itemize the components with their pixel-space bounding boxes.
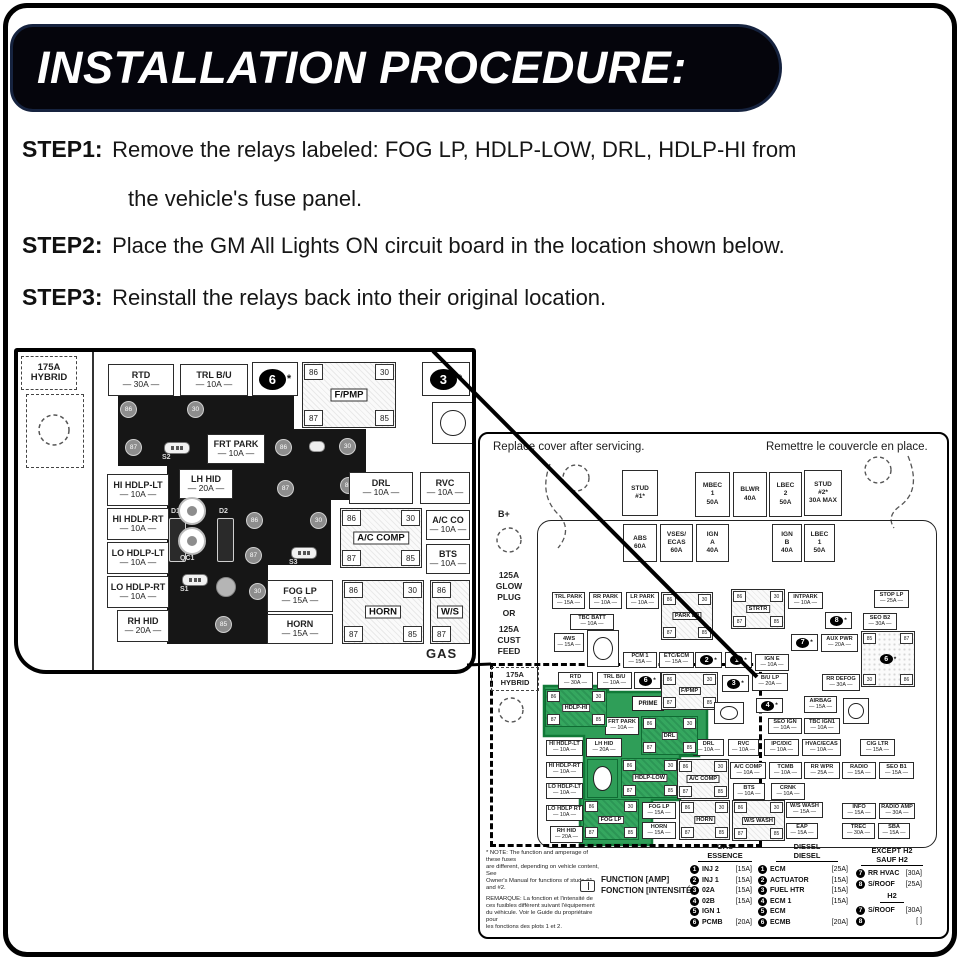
fuse-rr-defog-30a: RR DEFOG30A [822, 674, 860, 691]
screw-86: 86 [120, 401, 137, 418]
fuse-amp: 10A [810, 726, 833, 732]
relay-pin-87: 87 [734, 828, 747, 839]
component-oval [843, 698, 869, 724]
relay-pin-30: 30 [703, 674, 716, 685]
relay-w-s: 8687W/S [430, 580, 470, 644]
legend-amp: [30A] [906, 870, 922, 877]
fuse-amp: 10A [553, 748, 576, 754]
hybrid-175a-label: 175AHYBRID [491, 667, 539, 691]
owners-manual-icon [580, 880, 595, 892]
fuse-amp: 15A [882, 831, 905, 837]
relay-name-label: HORN [694, 816, 715, 824]
oval-shape [440, 410, 466, 437]
fuse-hvac-ecas-10a: HVAC/ECAS10A [802, 739, 841, 756]
fuse-lo-hdlp-rt-10a: LO HDLP-RT10A [107, 576, 169, 608]
fuse-amp: 10A [774, 771, 797, 777]
relay-hdlp-hi: 86308785HDLP-HI [545, 689, 607, 727]
relay-drl: 86308785DRL [641, 716, 698, 755]
fuse-amp: 10A [737, 792, 760, 798]
legend-amp: [15A] [736, 898, 752, 905]
badge-2: 2* [695, 652, 722, 668]
legend-name: INJ 2 [702, 866, 733, 873]
banner-title: INSTALLATION PROCEDURE: [37, 42, 687, 94]
fuse-lo-hdlp-rt-10a: LO HDLP RT10A [546, 805, 583, 821]
fuse-amp: 25A [810, 771, 833, 777]
legend-amp: [15A] [736, 887, 752, 894]
legend-name: IGN 1 [702, 908, 749, 915]
badge-asterisk: * [653, 677, 656, 684]
relay-name-label: W/S WASH [742, 817, 776, 825]
relay-pin-85: 85 [592, 714, 605, 725]
fuse-4ws-15a: 4WS15A [554, 633, 584, 652]
prime-label: PRIME [632, 696, 664, 711]
relay-pin-87: 87 [643, 742, 656, 753]
legend-name: PCMB [702, 919, 733, 926]
relay-pin-30: 30 [715, 802, 728, 813]
legend-name: ECM 1 [770, 898, 829, 905]
caption-english: Replace cover after servicing. [493, 441, 644, 453]
fuse-amp: 10A [810, 748, 833, 754]
fuse-amp: 25A [880, 599, 903, 605]
relay-pin-87: 87 [900, 633, 913, 644]
fuse-amp: 15A [647, 811, 670, 817]
component-oval [587, 759, 618, 798]
fuse-hi-hdlp-lt-10a: HI HDLP-LT10A [107, 474, 169, 506]
legend-amp: [15A] [736, 877, 752, 884]
step-1-text-line2: the vehicle's fuse panel. [128, 186, 362, 212]
legend-name: S/ROOF [868, 907, 903, 914]
legend-item-actuator: 2ACTUATOR[15A] [758, 876, 848, 885]
fuse-amp: 10A [610, 726, 633, 732]
legend-name: RR HVAC [868, 870, 903, 877]
relay-pin-87: 87 [663, 697, 676, 708]
relay-pin-86: 86 [344, 582, 363, 598]
fuse-seo-b1-15a: SEO B115A [879, 762, 914, 779]
function-amp-label: FUNCTION [AMP]FONCTION [INTENSITÉ] [601, 874, 694, 896]
badge-asterisk: * [287, 373, 291, 385]
fuse-amp: 10A [794, 601, 817, 607]
fuse-lo-hdlp-lt-10a: LO HDLP-LT10A [546, 783, 583, 799]
fuse-ign-a-40a: IGNA40A [696, 524, 729, 562]
legend-name: ACTUATOR [770, 877, 829, 884]
legend-num-3: 3 [758, 886, 767, 895]
legend-item-02b: 402B[15A] [690, 897, 752, 906]
fuse-amp: 10A [430, 525, 466, 534]
screw-30: 30 [249, 583, 266, 600]
legend-amp: [15A] [832, 887, 848, 894]
fuse-intpark-10a: INTPARK10A [788, 592, 823, 609]
badge-asterisk: * [458, 373, 462, 385]
fuse-a-c-comp-10a: A/C COMP10A [730, 762, 766, 779]
fuse-amp: 10A [120, 490, 156, 499]
fuse-ipc-dic-10a: IPC/DIC10A [764, 739, 799, 756]
relay-pin-30: 30 [403, 582, 422, 598]
badge-number: 7 [796, 638, 809, 648]
relay-pin-87: 87 [547, 714, 560, 725]
legend-item-h2-blank: 8[ ] [856, 917, 922, 926]
relay-pin-85: 85 [624, 827, 637, 838]
badge-asterisk: * [775, 702, 778, 709]
badge-number: 3 [727, 679, 740, 689]
qc1-label: QC1 [180, 555, 194, 562]
fuse-etc-ecm-15a: ETC/ECM15A [659, 652, 694, 668]
fuse-amp: 20A [555, 835, 578, 841]
legend-amp: [30A] [906, 907, 922, 914]
legend-header-h2: H2 [880, 892, 904, 903]
legend-item-ecmb: 6ECMB[20A] [758, 918, 848, 927]
fuse-amp: 15A [665, 660, 688, 666]
fuse-frt-park-10a: FRT PARK10A [605, 717, 639, 735]
step-1-text: Remove the relays labeled: FOG LP, HDLP-… [106, 137, 796, 162]
fuse-amp: 10A [120, 558, 156, 567]
relay-pin-86: 86 [733, 591, 746, 602]
legend-amp: [15A] [832, 877, 848, 884]
relay-pin-85: 85 [715, 827, 728, 838]
badge-number: 1 [730, 655, 743, 665]
relay-numbered-6: 858730866* [861, 631, 915, 687]
oval-shape [593, 637, 613, 661]
fuse-frt-park-10a: FRT PARK10A [207, 434, 265, 464]
step-3-label: STEP3: [22, 284, 106, 311]
fuse-amp: 20A [188, 484, 224, 493]
relay-name-label: STRTR [746, 605, 770, 613]
relay-name-label: HDLP-LOW [632, 774, 667, 782]
fuse-horn-15a: HORN15A [267, 614, 333, 644]
fuse-amp: 10A [430, 559, 466, 568]
relay-pin-30: 30 [714, 761, 727, 772]
screw-87: 87 [125, 439, 142, 456]
badge-asterisk: * [844, 617, 847, 624]
relay-pin-30: 30 [770, 802, 783, 813]
relay-pin-86: 86 [681, 802, 694, 813]
legend-num-6: 6 [690, 918, 699, 927]
fuse-trl-b-u-10a: TRL B/U10A [597, 672, 632, 689]
relay-pin-86: 86 [304, 364, 323, 380]
fuse-rh-hid-20a: RH HID20A [117, 610, 169, 642]
fuse-amp: 20A [125, 626, 161, 635]
fuse-hi-hdlp-rt-10a: HI HDLP-RT10A [546, 762, 583, 778]
fuse-stop-lp-25a: STOP LP25A [874, 590, 909, 608]
legend-item-ecm: 5ECM [758, 907, 848, 916]
fuse-lbec-1-50a: LBEC150A [804, 524, 835, 562]
legend-item-fuel-htr: 3FUEL HTR[15A] [758, 886, 848, 895]
fuse-amp: 30A [564, 681, 587, 687]
badge-number: 2 [700, 655, 713, 665]
legend-item-rr-hvac: 7RR HVAC[30A] [856, 869, 922, 878]
fuse-amp: 10A [773, 726, 796, 732]
step-1: STEP1: Remove the relays labeled: FOG LP… [22, 136, 952, 163]
badge-asterisk: * [810, 639, 813, 646]
fuse-amp: 10A [760, 663, 783, 669]
relay-pin-87: 87 [344, 626, 363, 642]
switch-label-s2: S2 [162, 454, 171, 461]
legend-amp: [20A] [736, 919, 752, 926]
legend-name: ECM [770, 866, 829, 873]
relay-pin-85: 85 [401, 550, 420, 566]
fuse-amp: 10A [553, 770, 576, 776]
component-oval [587, 630, 619, 667]
fuse-hi-hdlp-lt-10a: HI HDLP-LT10A [546, 740, 583, 756]
relay-pin-30: 30 [664, 760, 677, 771]
fuse-amp: 30A [868, 622, 891, 628]
fuse-bts-10a: BTS10A [733, 783, 765, 800]
relay-pin-87: 87 [585, 827, 598, 838]
relay-pin-30: 30 [698, 594, 711, 605]
legend-num-1: 1 [690, 865, 699, 874]
fuse-amp: 20A [592, 748, 615, 754]
fuse-amp: 15A [885, 771, 908, 777]
relay-park-lp: 86308785PARK LP [661, 592, 713, 640]
fuse-amp: 15A [790, 831, 813, 837]
badge-1: 1* [725, 652, 752, 668]
fuse-amp: 30A [829, 683, 852, 689]
fuse-amp: 10A [120, 592, 156, 601]
legend-amp: [15A] [832, 898, 848, 905]
fuse-horn-15a: HORN15A [642, 822, 676, 839]
relay-name-label: DRL [661, 732, 678, 740]
relay-pin-86: 86 [432, 582, 451, 598]
fuse-info-15a: INFO15A [842, 803, 876, 819]
fuse-amp: 15A [557, 643, 580, 649]
legend-num-7: 7 [856, 906, 865, 915]
fuse-w-s-wash-15a: W/S WASH15A [786, 802, 823, 818]
relay-badge-6: 6* [875, 651, 901, 667]
fuse-amp: 15A [847, 771, 870, 777]
screw-85: 85 [215, 616, 232, 633]
fuse-amp: 10A [603, 681, 626, 687]
step-2-label: STEP2: [22, 232, 106, 259]
relay-pin-87: 87 [733, 616, 746, 627]
fuse-fog-lp-15a: FOG LP15A [267, 580, 333, 612]
relay-pin-85: 85 [698, 627, 711, 638]
fuse-amp: 10A [553, 791, 576, 797]
glow-plug-label: 125AGLOWPLUGOR125ACUSTFEED [486, 570, 532, 657]
screw-86: 86 [275, 439, 292, 456]
fuse-amp: 30A [123, 380, 159, 389]
relay-horn: 86308785HORN [342, 580, 424, 644]
gas-label: GAS [426, 646, 457, 661]
fuse-eap-15a: EAP15A [786, 823, 818, 839]
badge-number: 6 [639, 676, 652, 686]
relay-pin-85: 85 [714, 786, 727, 797]
badge-asterisk: * [894, 656, 897, 663]
stud-circle-top-right [865, 457, 891, 483]
b-plus-stud-circle [497, 528, 521, 552]
diode-d2 [217, 518, 234, 562]
led-indicator [216, 577, 236, 597]
banner: INSTALLATION PROCEDURE: [10, 24, 782, 112]
fuse-amp: 30A [885, 811, 908, 817]
screw-30: 30 [339, 438, 356, 455]
relay-pin-30: 30 [770, 591, 783, 602]
component-oval [432, 402, 474, 444]
fuse-amp: 10A [594, 601, 617, 607]
fuse-amp: 15A [809, 705, 832, 711]
relay-name-label: PARK LP [672, 612, 701, 620]
screw-87: 87 [277, 480, 294, 497]
badge-7: 7* [791, 634, 818, 651]
badge-number: 4 [761, 701, 774, 711]
fuse-amp: 15A [647, 831, 670, 837]
fuse-amp: 10A [631, 601, 654, 607]
relay-pin-85: 85 [403, 626, 422, 642]
relay-pin-30: 30 [683, 718, 696, 729]
screw-blank [309, 441, 325, 452]
legend-num-5: 5 [690, 907, 699, 916]
fuse-amp: 15A [282, 629, 318, 638]
fuse-rtd-30a: RTD30A [108, 364, 174, 396]
switch-label-s3: S3 [289, 559, 298, 566]
fuse-amp: 15A [866, 748, 889, 754]
relay-pin-85: 85 [683, 742, 696, 753]
relay-pin-86: 86 [623, 760, 636, 771]
relay-pin-86: 86 [679, 761, 692, 772]
fuse-b-u-lp-20a: B/U LP20A [752, 673, 788, 691]
fuse-ign-e-10a: IGN E10A [755, 654, 789, 671]
fuse-seo-b2-30a: SEO B230A [863, 613, 897, 630]
badge-number: 6 [880, 654, 893, 664]
legend-num-1: 1 [758, 865, 767, 874]
relay-name-label: F/PMP [678, 687, 700, 695]
fuse-seo-ign-10a: SEO IGN10A [768, 718, 802, 734]
relay-pin-30: 30 [863, 674, 876, 685]
relay-f-pmp: 86308785F/PMP [302, 362, 396, 428]
legend-num-7: 7 [856, 869, 865, 878]
fuse-amp: 20A [758, 682, 781, 688]
relay-pin-86: 86 [663, 674, 676, 685]
fuse-lo-hdlp-lt-10a: LO HDLP-LT10A [107, 542, 169, 574]
qc1-terminal-2 [178, 527, 206, 555]
badge-3: 3* [422, 362, 470, 396]
relay-pin-85: 85 [770, 828, 783, 839]
b-plus-label: B+ [498, 509, 510, 520]
fuse-vses-ecas-60a: VSES/ECAS60A [660, 524, 693, 562]
relay-pin-30: 30 [624, 801, 637, 812]
relay-pin-87: 87 [304, 410, 323, 426]
legend-num-6: 6 [758, 918, 767, 927]
relay-pin-87: 87 [663, 627, 676, 638]
legend-name: ECM [770, 908, 845, 915]
fuse-amp: 10A [363, 488, 399, 497]
badge-number: 3 [430, 369, 457, 390]
fuse-amp: 15A [557, 601, 580, 607]
step-3-text: Reinstall the relays back into their ori… [106, 285, 606, 310]
relay-hdlp-low: 86308785HDLP-LOW [621, 758, 679, 798]
oval-shape [593, 766, 612, 791]
relay-pin-87: 87 [681, 827, 694, 838]
board-detail-callout: 175AHYBRID FRT PARK10ALH HID20A863087863… [14, 348, 476, 674]
fuse-tcmb-10a: TCMB10A [769, 762, 802, 779]
fuse-drl-10a: DRL10A [349, 472, 413, 504]
switch-s3 [291, 547, 317, 559]
fuse-lh-hid-20a: LH HID20A [586, 738, 622, 757]
fuse-fog-lp-15a: FOG LP15A [642, 802, 676, 819]
legend-item-02a: 302A[15A] [690, 886, 752, 895]
legend-num-2: 2 [690, 876, 699, 885]
legend-item-ign-1: 5IGN 1 [690, 907, 752, 916]
legend-header-except-h2: EXCEPT H2SAUF H2 [861, 847, 923, 866]
fuse-amp: 10A [697, 748, 720, 754]
relay-strtr: 86308785STRTR [731, 589, 785, 629]
fuse-trl-park-15a: TRL PARK15A [552, 592, 585, 609]
legend-header-gas: GASESSENCE [698, 843, 752, 862]
fuse-aux-pwr-20a: AUX PWR20A [821, 634, 858, 652]
step-2-text: Place the GM All Lights ON circuit board… [106, 233, 785, 258]
legend-amp: [ ] [916, 918, 922, 925]
relay-pin-87: 87 [623, 785, 636, 796]
fuse-lr-park-10a: LR PARK10A [626, 592, 659, 609]
relay-pin-85: 85 [664, 785, 677, 796]
fuse-amp: 30A [847, 831, 870, 837]
oval-shape [720, 706, 739, 720]
relay-pin-87: 87 [679, 786, 692, 797]
legend-num-5: 5 [758, 907, 767, 916]
relay-f-pmp: 86308785F/PMP [661, 672, 718, 710]
relay-name-label: FOG LP [598, 816, 624, 824]
diode-label-d2: D2 [219, 508, 228, 515]
legend-num-4: 4 [758, 897, 767, 906]
relay-a-c-comp: 86308785A/C COMP [677, 759, 729, 799]
oval-shape [848, 703, 864, 720]
legend-num-3: 3 [690, 886, 699, 895]
fuse-amp: 15A [847, 811, 870, 817]
fuse-rh-hid-20a: RH HID20A [550, 826, 583, 843]
fuse-rvc-10a: RVC10A [728, 739, 759, 756]
legend-item-h2-s-roof: 7S/ROOF[30A] [856, 906, 922, 915]
stud-circle-top-left [563, 465, 589, 491]
fuse-ign-b-40a: IGNB40A [772, 524, 802, 562]
badge-6: 6* [634, 672, 661, 689]
fuse-rvc-10a: RVC10A [420, 472, 470, 504]
fuse-hi-hdlp-rt-10a: HI HDLP-RT10A [107, 508, 169, 540]
fuse-stud-2-30a-max: STUD#2*30A MAX [804, 470, 842, 516]
legend-num-2: 2 [758, 876, 767, 885]
fuse-rr-wpr-25a: RR WPR25A [804, 762, 840, 779]
fuse-stud-1: STUD#1* [622, 470, 658, 516]
relay-pin-86: 86 [342, 510, 361, 526]
relay-name-label: HDLP-HI [562, 704, 590, 712]
relay-pin-86: 86 [900, 674, 913, 685]
fuse-sba-15a: SBA15A [878, 823, 910, 839]
relay-a-c-comp: 86308785A/C COMP [340, 508, 422, 568]
hybrid-stud-box [26, 394, 84, 468]
fuse-radio-15a: RADIO15A [842, 762, 876, 779]
fuse-amp: 15A [282, 596, 318, 605]
legend-name: INJ 1 [702, 877, 733, 884]
legend-item-pcmb: 6PCMB[20A] [690, 918, 752, 927]
legend-amp: [15A] [736, 866, 752, 873]
relay-w-s-wash: 86308785W/S WASH [732, 800, 785, 841]
relay-pin-85: 85 [863, 633, 876, 644]
legend-item-inj-2: 1INJ 2[15A] [690, 865, 752, 874]
qc1-terminal-center [187, 506, 197, 516]
badge-asterisk: * [744, 657, 747, 664]
relay-pin-86: 86 [643, 718, 656, 729]
fuse-amp: 10A [553, 813, 576, 819]
fuse-panel-diagram: Replace cover after servicing. Remettre … [478, 432, 949, 939]
legend-name: S/ROOF [868, 881, 903, 888]
fuse-amp: 20A [828, 643, 851, 649]
fuse-amp: 10A [427, 488, 463, 497]
fuse-radio-amp-30a: RADIO AMP30A [879, 803, 915, 819]
badge-asterisk: * [741, 680, 744, 687]
switch-s2 [164, 442, 190, 454]
fuse-a-c-co-10a: A/C CO10A [426, 510, 470, 540]
relay-pin-30: 30 [375, 364, 394, 380]
relay-pin-86: 86 [663, 594, 676, 605]
step-3: STEP3: Reinstall the relays back into th… [22, 284, 952, 311]
relay-pin-87: 87 [342, 550, 361, 566]
